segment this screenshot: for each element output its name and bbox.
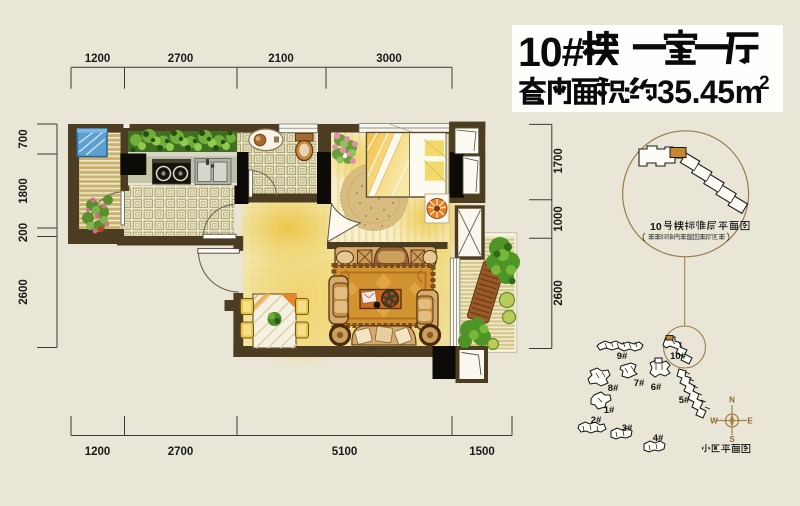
- svg-text:10: 10: [650, 221, 662, 233]
- svg-text:200: 200: [18, 223, 30, 242]
- svg-text:10#: 10#: [518, 29, 585, 75]
- svg-text:1800: 1800: [18, 178, 30, 204]
- svg-text:1500: 1500: [469, 446, 495, 458]
- svg-text:2700: 2700: [168, 446, 194, 458]
- svg-text:1200: 1200: [85, 446, 111, 458]
- svg-text:8#: 8#: [608, 383, 619, 394]
- svg-text:1700: 1700: [553, 148, 565, 174]
- svg-text:2: 2: [759, 73, 770, 94]
- svg-text:1#: 1#: [604, 405, 615, 416]
- svg-text:2600: 2600: [18, 279, 30, 305]
- svg-text:N: N: [729, 396, 735, 405]
- svg-text:E: E: [747, 417, 753, 426]
- svg-text:10#: 10#: [670, 351, 687, 362]
- svg-text:6#: 6#: [651, 382, 662, 393]
- svg-text:1000: 1000: [553, 206, 565, 232]
- svg-text:3#: 3#: [622, 423, 633, 434]
- svg-text:2100: 2100: [268, 53, 294, 65]
- svg-text:35.45m: 35.45m: [657, 74, 763, 110]
- svg-text:S: S: [729, 435, 735, 444]
- svg-text:9#: 9#: [617, 351, 628, 362]
- svg-text:W: W: [710, 417, 718, 426]
- svg-text:7#: 7#: [634, 378, 645, 389]
- svg-text:5100: 5100: [332, 446, 358, 458]
- svg-text:3000: 3000: [376, 53, 402, 65]
- svg-text:5#: 5#: [679, 395, 690, 406]
- svg-text:2#: 2#: [591, 415, 602, 426]
- svg-text:4#: 4#: [653, 433, 664, 444]
- svg-text:700: 700: [18, 129, 30, 148]
- svg-text:1200: 1200: [85, 53, 111, 65]
- svg-text:2700: 2700: [168, 53, 194, 65]
- svg-text:2600: 2600: [553, 280, 565, 306]
